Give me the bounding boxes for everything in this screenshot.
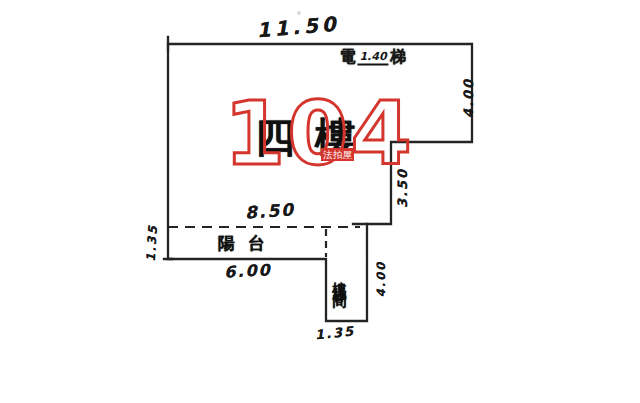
watermark-number: 104 xyxy=(224,82,414,185)
floor-plan-page: 四樓 11.50 4.00 3.50 8.50 6.00 1.35 4.00 1… xyxy=(0,0,640,403)
watermark-badge-text: 法拍屋 xyxy=(322,149,352,160)
watermark-layer: 104 法拍屋 xyxy=(0,0,640,403)
